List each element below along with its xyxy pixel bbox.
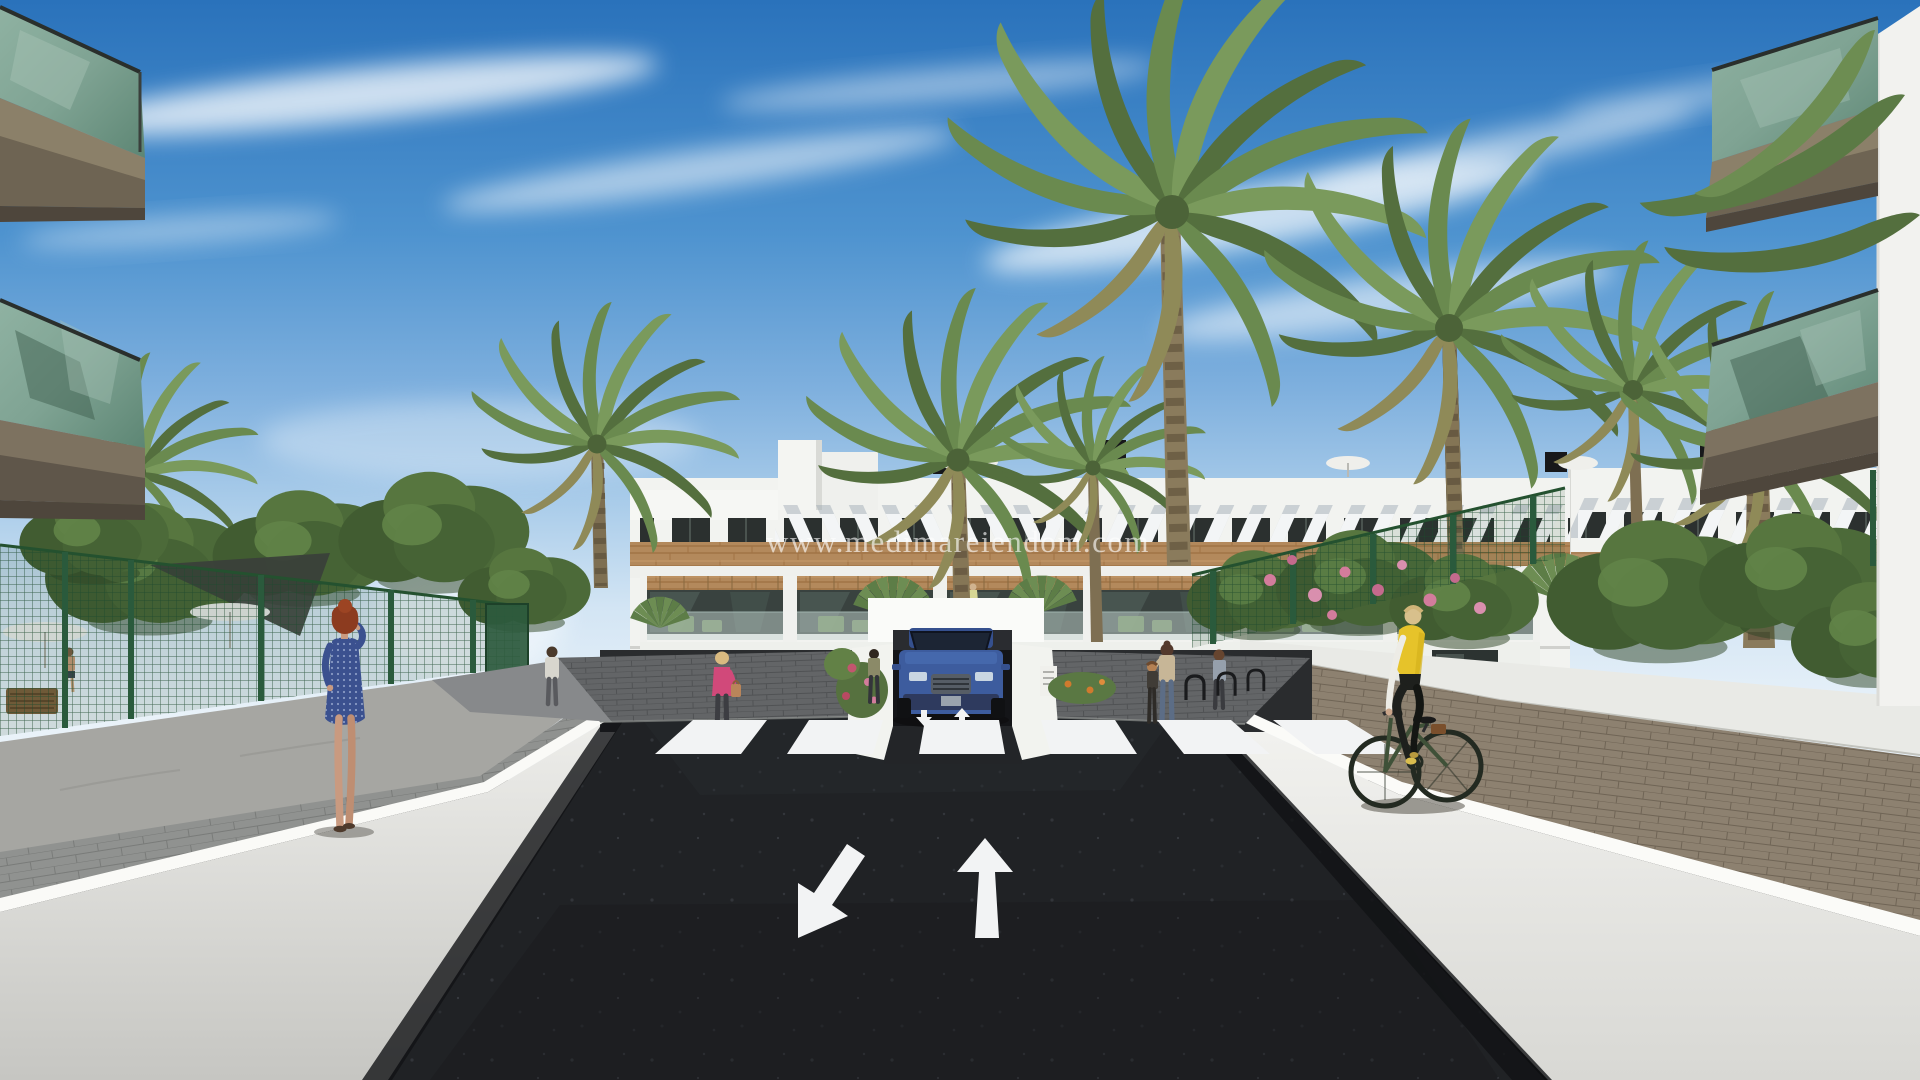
- blue-suv: [892, 628, 1010, 728]
- architectural-render: www.medimareiendom.com: [0, 0, 1920, 1080]
- scene-render: www.medimareiendom.com: [0, 0, 1920, 1080]
- planter-right-of-ramp: [1048, 672, 1116, 704]
- watermark: www.medimareiendom.com: [766, 524, 1150, 559]
